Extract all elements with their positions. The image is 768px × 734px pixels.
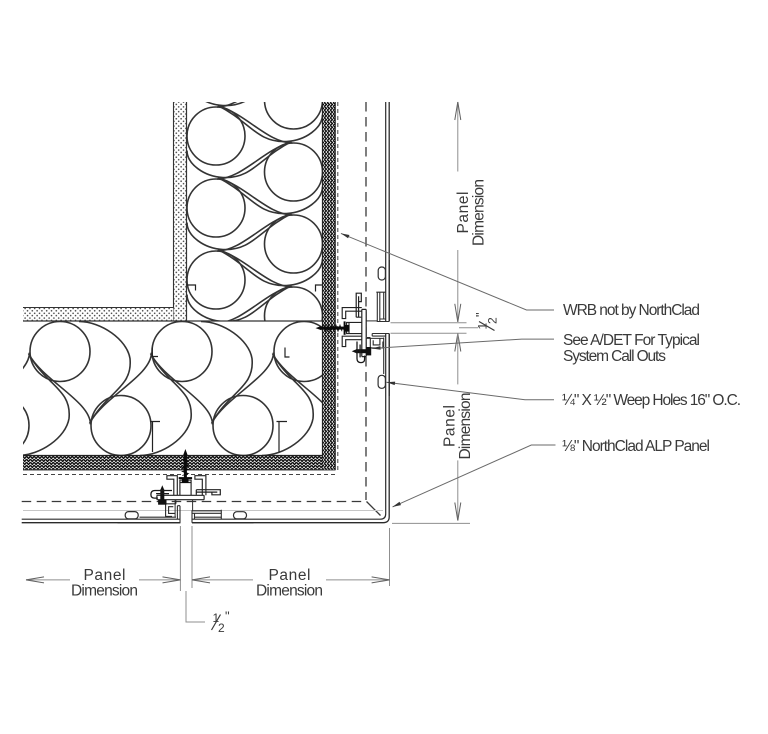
svg-text:": " — [473, 312, 488, 317]
svg-text:¼" X ½" Weep Holes 16" O.C.: ¼" X ½" Weep Holes 16" O.C. — [562, 392, 741, 409]
svg-text:Panel: Panel — [269, 567, 311, 584]
svg-text:PanelDimension: PanelDimension — [442, 393, 475, 460]
svg-text:Panel: Panel — [84, 567, 126, 584]
svg-text:Dimension: Dimension — [71, 583, 138, 600]
svg-text:2: 2 — [218, 621, 225, 635]
svg-text:WRB not by NorthClad: WRB not by NorthClad — [563, 302, 700, 319]
svg-text:⅛" NorthClad ALP Panel: ⅛" NorthClad ALP Panel — [562, 438, 710, 455]
svg-text:System Call Outs: System Call Outs — [563, 348, 666, 365]
svg-text:See A/DET For Typical: See A/DET For Typical — [563, 332, 700, 349]
svg-text:PanelDimension: PanelDimension — [455, 179, 488, 246]
svg-text:Dimension: Dimension — [256, 583, 323, 600]
svg-text:2: 2 — [486, 317, 500, 324]
svg-text:": " — [225, 609, 230, 624]
